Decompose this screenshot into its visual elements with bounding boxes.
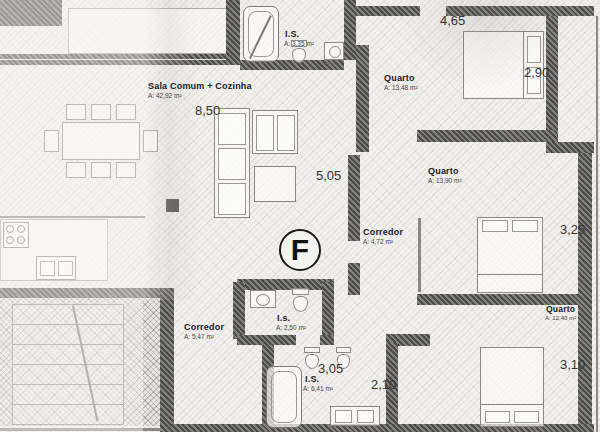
wall [344, 0, 356, 60]
toilet-tank [292, 288, 309, 295]
dining-chair [66, 104, 86, 120]
room-area-corredor-bottom: A: 5,47 m² [184, 333, 214, 340]
room-area-is-top: A: 3,35 m² [284, 40, 314, 47]
wall [348, 263, 360, 295]
dining-chair [66, 162, 86, 178]
room-area-corredor-right: A: 4,72 m² [363, 238, 393, 245]
wall [160, 288, 174, 432]
pillow [527, 36, 541, 63]
dining-chair [116, 104, 136, 120]
kitchen-sink [36, 256, 76, 280]
wall [356, 45, 369, 152]
wall [233, 282, 245, 339]
pillow [485, 411, 510, 423]
room-name-is-top: I.S. [285, 29, 299, 39]
bed-line [478, 274, 542, 275]
adjacent-room-band [68, 8, 230, 54]
dim-quarto2-depth: 3,25 [560, 222, 585, 237]
sink-basin [335, 410, 352, 423]
dim-quarto1-depth: 2,90 [524, 65, 549, 80]
room-area-quarto2: A: 13,90 m² [428, 177, 462, 184]
staircase [0, 298, 160, 426]
wall [578, 153, 592, 432]
bathtub [266, 366, 302, 428]
stove-burner [6, 236, 14, 244]
sofa-cushion [277, 115, 295, 151]
dining-chair [116, 162, 136, 178]
room-name-corredor-bottom: Corredor [184, 322, 224, 332]
room-name-sala: Sala Comum + Cozinha [148, 81, 252, 91]
wall [446, 6, 594, 16]
dim-sala-depth: 5,05 [316, 168, 341, 183]
unit-letter: F [291, 235, 309, 265]
pillow [512, 220, 538, 232]
room-name-quarto2: Quarto [428, 166, 459, 176]
pillow [514, 411, 539, 423]
dining-table [62, 122, 140, 160]
room-area-sala: A: 42,92 m² [148, 92, 182, 99]
wall [348, 155, 360, 241]
stair-tread [12, 344, 124, 365]
bed-line [481, 404, 543, 405]
stair-bottom-line [0, 428, 162, 431]
room-name-quarto3: Quarto [546, 304, 575, 314]
wall [226, 0, 240, 65]
wall [322, 282, 334, 339]
dim-quarto1-width: 4,65 [440, 13, 465, 28]
basin [329, 46, 341, 58]
wall [0, 288, 170, 298]
sofa-cushion [218, 183, 246, 215]
room-name-corredor-right: Corredor [363, 227, 403, 237]
stove [3, 222, 29, 248]
bidet-tank [336, 347, 351, 353]
room-name-is-main: I.S. [305, 374, 319, 384]
bed-quarto-3 [480, 347, 544, 427]
stair-tread [12, 364, 124, 385]
dining-chair [91, 162, 111, 178]
dim-is-main-depth: 2,10 [371, 377, 396, 392]
room-name-quarto1: Quarto [384, 73, 415, 83]
facade-line [596, 16, 598, 432]
coffee-table [254, 166, 296, 202]
wall [0, 0, 62, 26]
dim-quarto3-depth: 3,10 [560, 357, 585, 372]
wall-double-line [0, 59, 234, 60]
dim-sala-width: 8,50 [195, 103, 220, 118]
sink-basin [357, 410, 374, 423]
bathtub-inner [271, 371, 297, 423]
wall [417, 130, 557, 142]
wall [546, 142, 594, 153]
stove-burner [17, 236, 25, 244]
stove-burner [6, 225, 14, 233]
stair-tread [12, 404, 124, 425]
unit-letter-marker: F [279, 229, 321, 271]
dining-chair [91, 104, 111, 120]
toilet-bowl [293, 296, 308, 312]
sofa-section-vertical [214, 108, 250, 218]
door-leaf-line [418, 218, 421, 292]
room-area-is-small: A: 2,50 m² [276, 324, 306, 331]
room-area-quarto1: A: 13,48 m² [384, 84, 418, 91]
toilet-bowl [305, 354, 319, 369]
washbasin [250, 290, 276, 308]
washbasin [324, 42, 344, 60]
bed-quarto-2 [477, 217, 543, 293]
wall [320, 335, 334, 345]
room-name-is-small: I.s. [277, 313, 290, 323]
pillow [482, 220, 508, 232]
room-area-quarto3: A: 12,40 m² [545, 315, 576, 321]
wall [237, 279, 334, 290]
stair-tread [12, 324, 124, 345]
sofa-cushion [256, 115, 274, 151]
toilet-tank [304, 347, 320, 353]
stove-burner [17, 225, 25, 233]
bathtub [243, 6, 279, 62]
sink-basin [40, 261, 55, 276]
wall [356, 6, 420, 16]
double-washbasin [330, 406, 380, 426]
sofa-cushion [218, 113, 246, 145]
floor-plan: F Sala Comum + Cozinha A: 42,92 m² 8,50 … [0, 0, 600, 432]
stair-tread [12, 384, 124, 405]
dining-chair [44, 130, 59, 152]
sofa-cushion [218, 148, 246, 180]
sink-basin [58, 261, 73, 276]
sofa-section-horizontal [252, 110, 298, 154]
room-area-is-main: A: 6,41 m² [303, 385, 333, 392]
tv-unit [166, 199, 179, 212]
dim-is-main-width: 3,05 [318, 361, 343, 376]
stair-tread [12, 304, 124, 325]
basin [256, 294, 270, 306]
dining-chair [143, 130, 158, 152]
counter-line [0, 216, 145, 218]
wall [237, 335, 296, 345]
